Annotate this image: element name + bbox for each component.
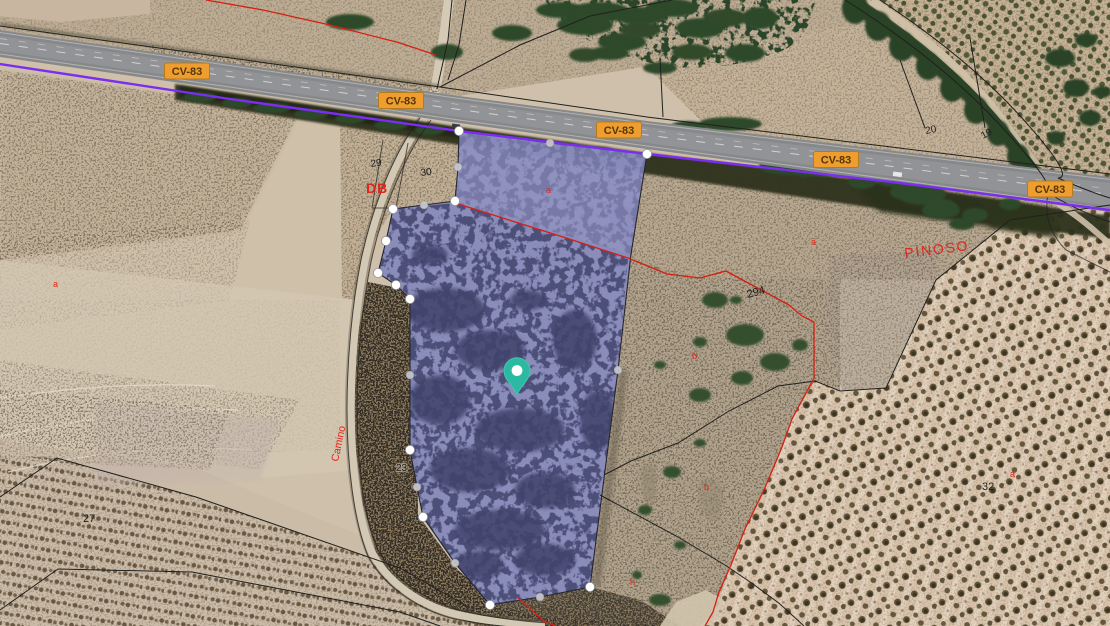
svg-text:32: 32 xyxy=(982,481,994,493)
svg-text:27: 27 xyxy=(83,513,95,525)
svg-text:a: a xyxy=(53,279,58,289)
svg-text:h: h xyxy=(630,577,635,587)
svg-text:a: a xyxy=(811,237,816,247)
svg-text:b: b xyxy=(704,482,709,492)
svg-text:CV-83: CV-83 xyxy=(1035,184,1066,196)
svg-text:CV-83: CV-83 xyxy=(821,155,852,167)
svg-text:a: a xyxy=(1010,469,1015,479)
svg-text:CV-83: CV-83 xyxy=(604,125,635,137)
svg-text:30: 30 xyxy=(420,166,433,179)
svg-text:a: a xyxy=(546,185,551,195)
svg-text:CV-83: CV-83 xyxy=(386,96,417,108)
svg-text:CV-83: CV-83 xyxy=(172,66,203,78)
svg-text:DB: DB xyxy=(366,180,388,196)
svg-text:b: b xyxy=(692,351,697,361)
svg-text:29: 29 xyxy=(370,157,383,170)
svg-text:23: 23 xyxy=(396,463,408,474)
